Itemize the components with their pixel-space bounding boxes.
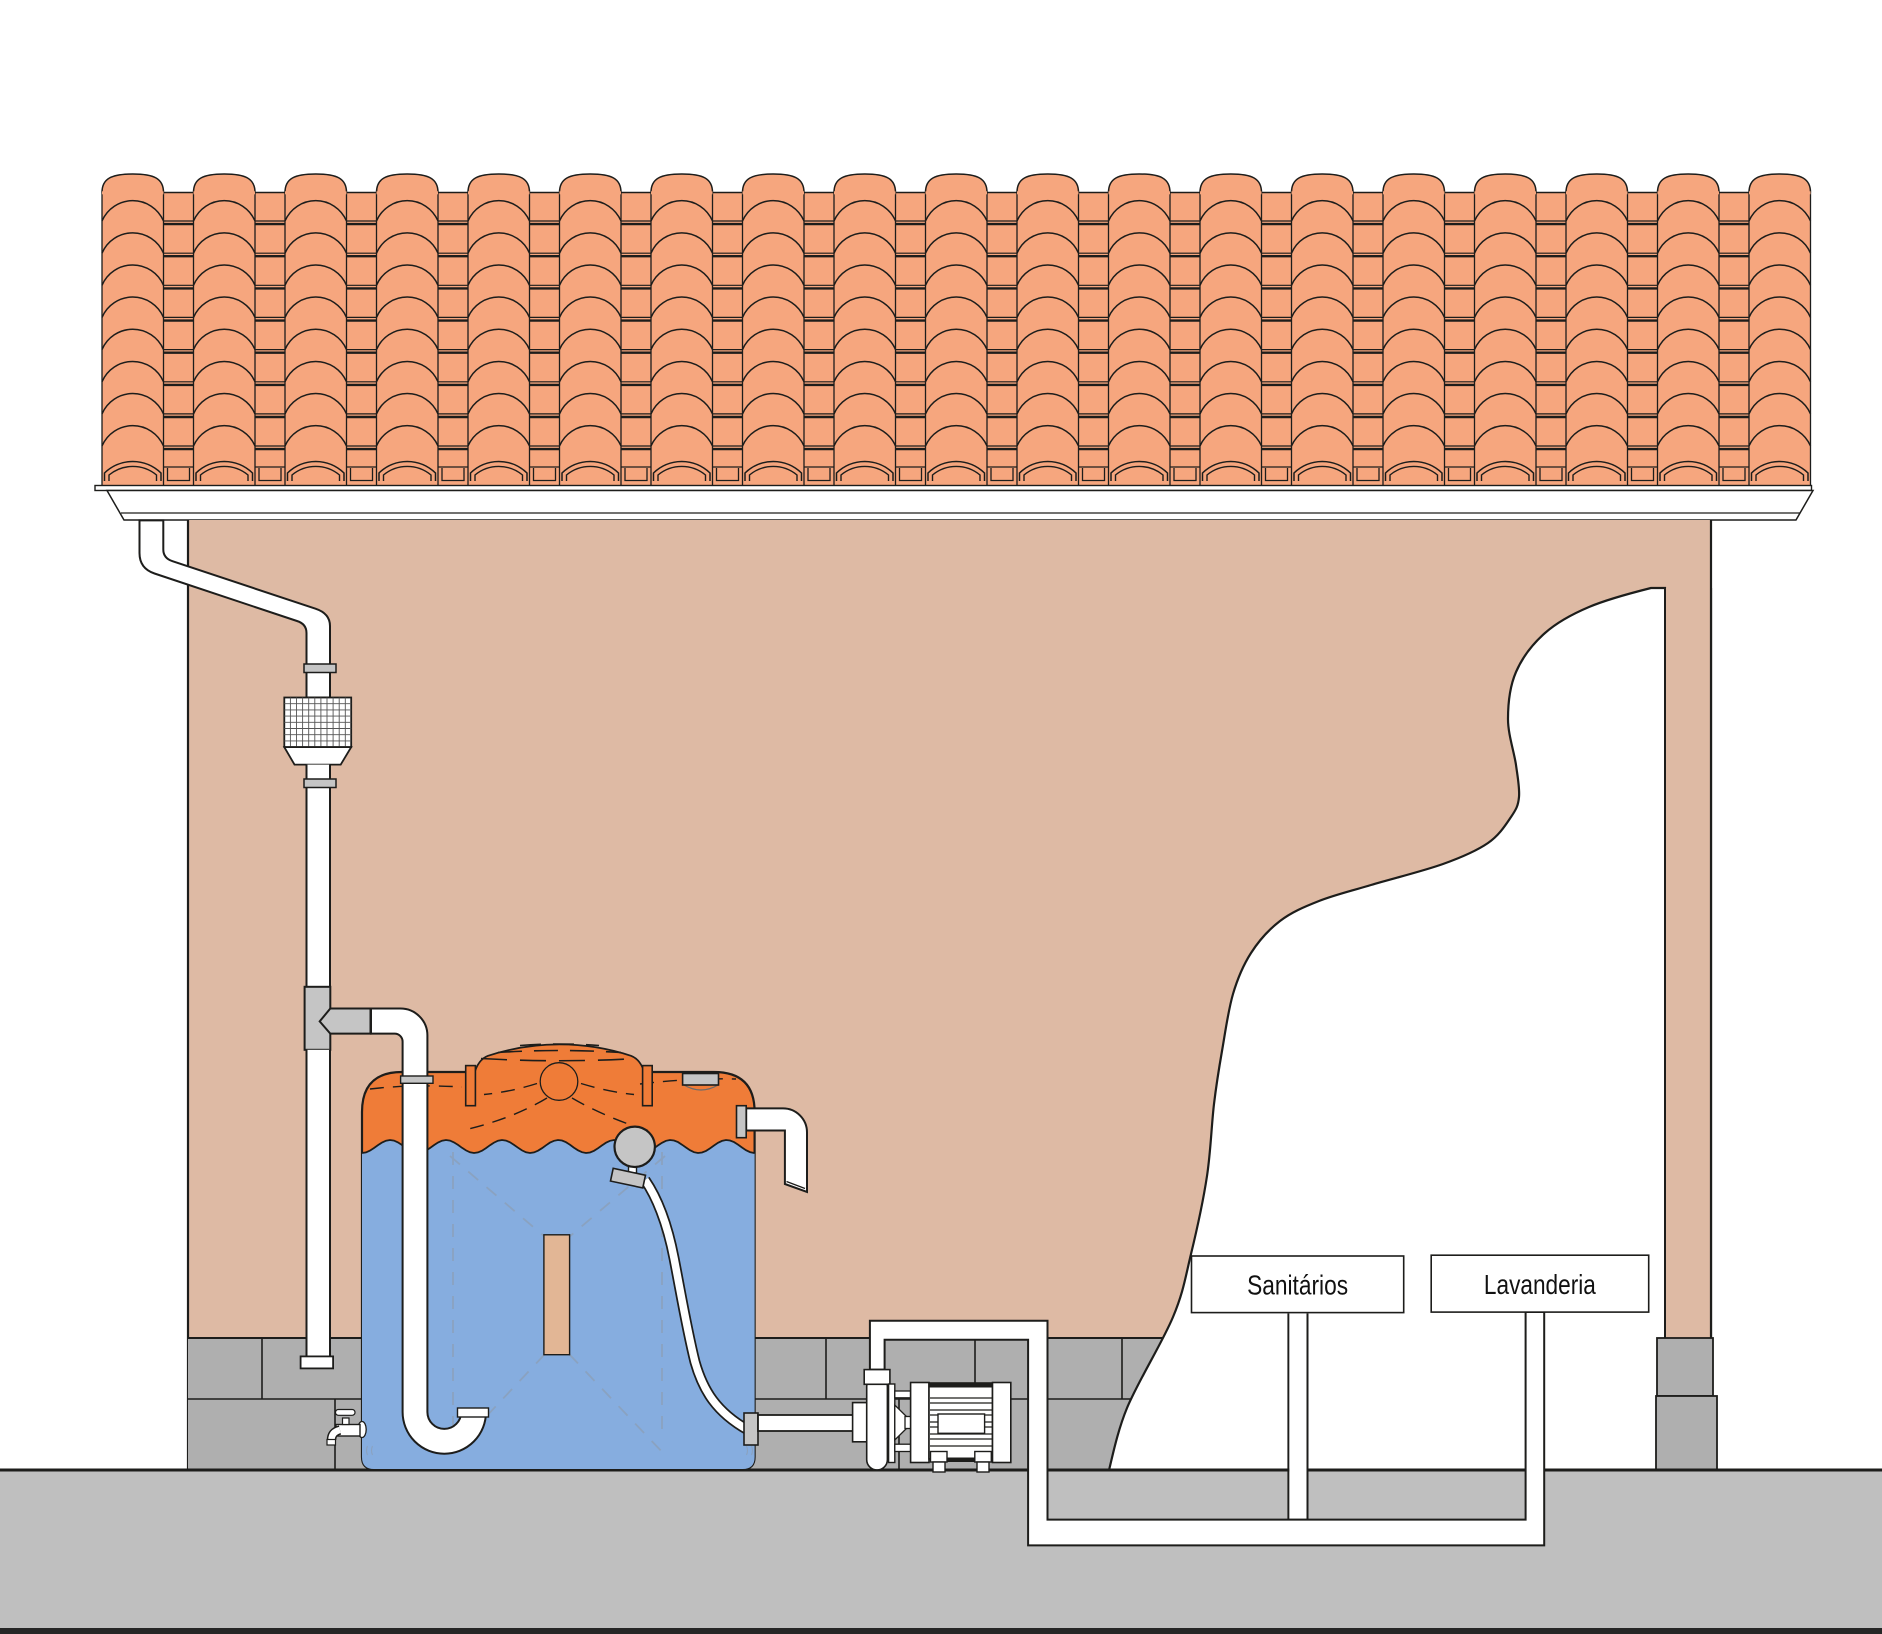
svg-text:Lavanderia: Lavanderia <box>1484 1269 1596 1300</box>
svg-text:Sanitários: Sanitários <box>1247 1270 1348 1301</box>
